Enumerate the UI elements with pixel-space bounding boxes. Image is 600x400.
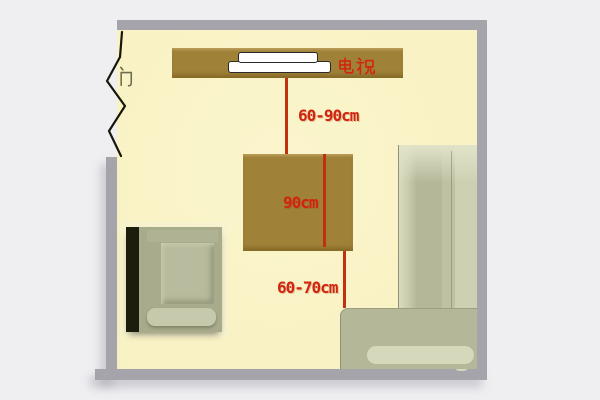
tv-character-dian-glyph <box>336 57 354 76</box>
room-layout-diagram: 门 电视 60-90cm <box>0 0 600 400</box>
door-character-glyph <box>118 66 134 87</box>
measure-line-tv-to-table <box>285 78 288 155</box>
measure-line-table-depth <box>323 154 326 247</box>
armchair-photo-background <box>121 222 227 337</box>
tv-character-shi-glyph <box>356 57 375 76</box>
wall-left <box>106 157 117 380</box>
wall-right <box>477 20 487 380</box>
measure-label-table-to-sofa: 60-70cm <box>277 280 337 296</box>
corner-sofa-bottom-cushion <box>367 346 474 364</box>
armchair-seat-cushion <box>161 243 214 304</box>
armchair-front-rest <box>147 308 216 326</box>
corner-sofa-bottom-section <box>340 308 477 369</box>
measure-label-table-depth: 90cm <box>283 195 318 211</box>
door-swing-line <box>100 27 136 163</box>
armchair-back-band <box>147 230 218 242</box>
measure-label-tv-to-table: 60-90cm <box>298 108 358 124</box>
tv-label: 电视 <box>336 57 375 76</box>
armchair <box>126 227 222 332</box>
wall-bottom <box>95 369 487 380</box>
door-label: 门 <box>118 66 134 87</box>
tv-screen <box>238 52 318 63</box>
wall-top <box>117 20 487 30</box>
measure-line-table-to-sofa <box>343 251 346 308</box>
corner-sofa-top-highlight <box>399 145 477 183</box>
